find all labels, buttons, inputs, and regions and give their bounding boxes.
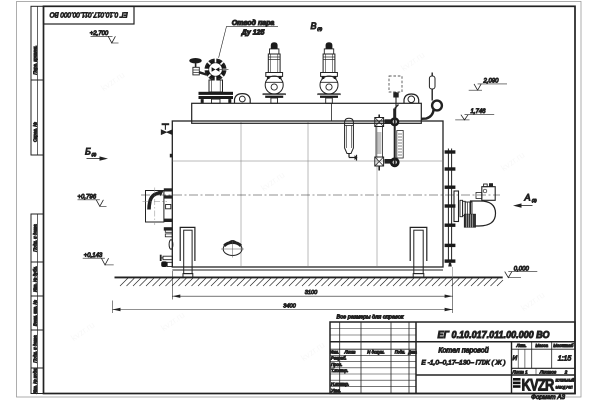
svg-text:Подп.: Подп. [395,350,406,355]
svg-text:Масса: Масса [535,343,548,348]
svg-text:Инв. № подл.: Инв. № подл. [33,368,38,394]
svg-text:Разраб.: Разраб. [331,356,347,361]
svg-text:Лит.: Лит. [515,343,526,348]
svg-text:2: 2 [564,370,568,375]
svg-text:Масштаб: Масштаб [553,343,574,348]
svg-text:Взам. инв. №: Взам. инв. № [33,300,38,326]
svg-text:Лист: Лист [343,350,355,355]
svg-text:N докум.: N докум. [367,350,384,355]
svg-text:В: В [311,21,317,31]
svg-text:Т.контр.: Т.контр. [331,368,348,373]
svg-text:А: А [524,193,531,203]
svg-text:ЕГ 0.10.017.011.00.000 ВО: ЕГ 0.10.017.011.00.000 ВО [49,11,127,20]
svg-text:3100: 3100 [305,290,318,296]
svg-text:ЗАВОД РЭП: ЗАВОД РЭП [556,386,573,390]
svg-text:kvzr.ru: kvzr.ru [519,290,546,313]
svg-text:kvzr.ru: kvzr.ru [499,150,526,173]
svg-text:kvzr.ru: kvzr.ru [299,340,326,363]
svg-text:kvzr.ru: kvzr.ru [159,310,186,333]
svg-text:Отвод пара: Отвод пара [232,19,275,27]
svg-text:Пров.: Пров. [331,362,342,367]
svg-text:(2): (2) [317,26,323,31]
svg-text:Подп. и дата: Подп. и дата [33,335,38,363]
svg-text:Лист 1: Лист 1 [511,370,528,375]
svg-text:1:15: 1:15 [558,356,572,363]
svg-text:Инв. № дубл.: Инв. № дубл. [33,266,38,292]
svg-text:Котел паровой: Котел паровой [438,347,488,355]
svg-text:Изм.: Изм. [330,350,339,355]
svg-text:Б: Б [85,147,91,157]
svg-text:kvzr.ru: kvzr.ru [69,320,96,343]
svg-text:3400: 3400 [283,303,296,309]
svg-text:(2): (2) [532,198,538,203]
svg-text:Ду 125: Ду 125 [241,30,265,37]
svg-text:1,746: 1,746 [470,109,486,115]
svg-text:2,090: 2,090 [482,78,499,84]
svg-text:Е -1,0–0,17–130– ГЛЖ ( Ж ): Е -1,0–0,17–130– ГЛЖ ( Ж ) [421,360,505,367]
svg-text:KVZR: KVZR [522,377,555,395]
svg-text:kvzr.ru: kvzr.ru [99,70,126,93]
svg-text:(2): (2) [92,152,98,157]
svg-text:КОТЕЛЬНЫЙ: КОТЕЛЬНЫЙ [556,379,575,383]
svg-text:ЕГ 0.10.017.011.00.000 ВО: ЕГ 0.10.017.011.00.000 ВО [438,330,550,341]
svg-text:Н.контр.: Н.контр. [331,382,349,387]
svg-text:Листов: Листов [539,370,557,375]
svg-text:Справ. №: Справ. № [33,122,38,142]
svg-text:Перв. примен.: Перв. примен. [33,45,38,74]
svg-text:kvzr.ru: kvzr.ru [259,170,286,193]
svg-text:Дата: Дата [408,350,418,355]
svg-text:Подп. и дата: Подп. и дата [33,224,38,252]
svg-text:И: И [512,355,517,362]
svg-text:Утв.: Утв. [331,388,341,393]
svg-text:Формат А3: Формат А3 [531,394,565,400]
svg-text:kvzr.ru: kvzr.ru [399,50,426,73]
svg-text:Все размеры для справок: Все размеры для справок [337,315,404,321]
